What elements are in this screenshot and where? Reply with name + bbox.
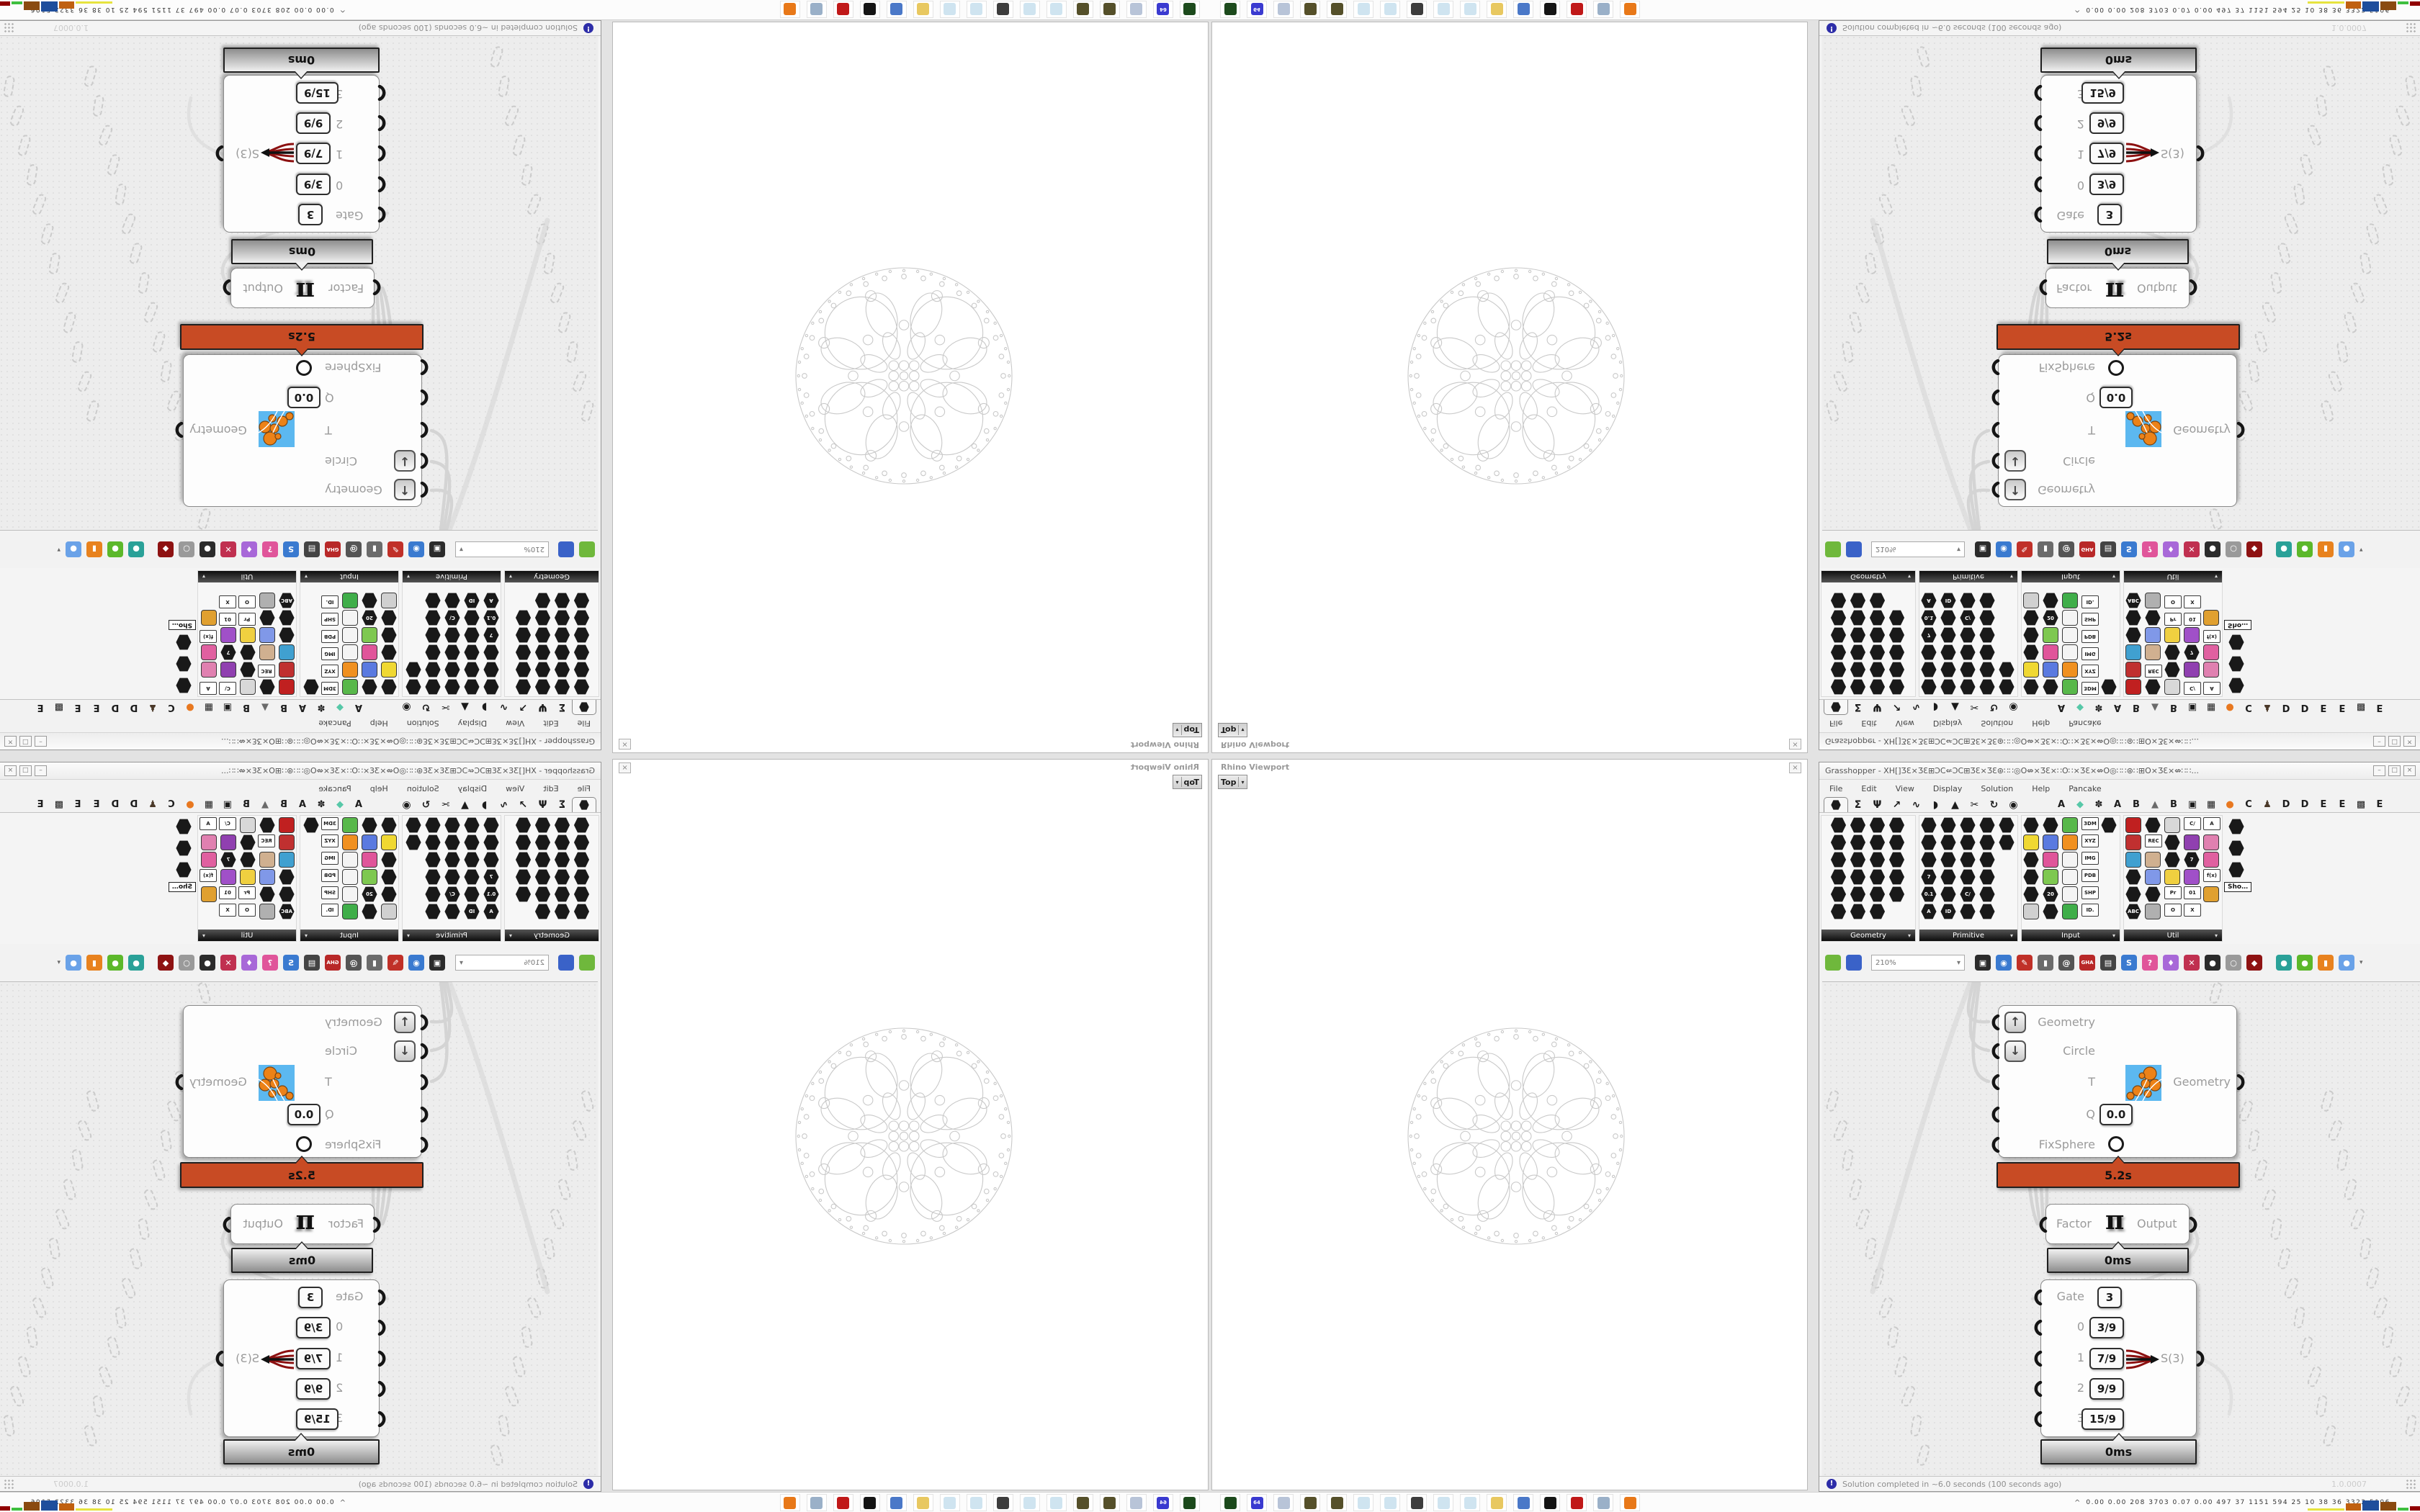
- mystery-box-icon[interactable]: ?: [2142, 955, 2158, 971]
- palette-panel-label[interactable]: Input▾: [300, 571, 398, 582]
- gate-3-value-box[interactable]: 15/9: [2081, 1408, 2124, 1430]
- component-icon[interactable]: 01: [219, 886, 236, 899]
- component-icon[interactable]: [535, 627, 551, 643]
- component-icon[interactable]: [1889, 679, 1905, 695]
- tab-surface[interactable]: ◗: [475, 799, 494, 811]
- component-icon[interactable]: [1979, 869, 1995, 885]
- tray-calculator[interactable]: [807, 1, 827, 18]
- component-icon[interactable]: [574, 817, 590, 833]
- gem-icon[interactable]: ◆: [2246, 541, 2262, 557]
- component-icon[interactable]: [2023, 834, 2039, 850]
- component-icon[interactable]: [483, 817, 499, 833]
- tab-plugin-bird[interactable]: ♟: [2258, 702, 2277, 713]
- capsule-orange-icon[interactable]: ▮: [2318, 955, 2334, 971]
- component-icon[interactable]: [2145, 869, 2161, 885]
- tab-plugin-b1[interactable]: B: [274, 702, 293, 713]
- palette-panel-label[interactable]: Primitive▾: [1919, 930, 2017, 941]
- component-icon[interactable]: [555, 627, 570, 643]
- tab-params[interactable]: [572, 797, 596, 812]
- component-icon[interactable]: [1940, 852, 1956, 868]
- component-icon[interactable]: [2125, 834, 2141, 850]
- component-icon[interactable]: SHP: [2081, 613, 2099, 626]
- component-icon[interactable]: [425, 852, 441, 868]
- tray-notepad-3[interactable]: [967, 1, 987, 18]
- component-icon[interactable]: [362, 834, 377, 850]
- component-icon[interactable]: [516, 662, 532, 678]
- component-icon[interactable]: [279, 627, 295, 643]
- menu-file[interactable]: File: [1829, 719, 1842, 729]
- component-icon[interactable]: [2043, 627, 2058, 643]
- tray-floppy-64[interactable]: 64: [1153, 1494, 1173, 1511]
- component-icon[interactable]: [555, 610, 570, 626]
- tab-plugin-d1[interactable]: D: [2277, 702, 2295, 713]
- tray-badge-red[interactable]: [833, 1, 853, 18]
- rhino-viewport-panel[interactable]: Rhino Viewport × Top ▾: [612, 759, 1209, 1490]
- menu-help[interactable]: Help: [370, 719, 388, 729]
- component-icon[interactable]: [176, 862, 192, 878]
- palette-panel-label[interactable]: Geometry▾: [1821, 571, 1915, 582]
- tab-display[interactable]: ◉: [2004, 799, 2023, 811]
- tab-plugin-e2[interactable]: E: [2333, 799, 2352, 810]
- component-pi[interactable]: Factor π Output: [230, 268, 375, 308]
- component-icon[interactable]: [2043, 817, 2058, 833]
- component-icon[interactable]: [240, 627, 256, 643]
- component-icon[interactable]: ABC: [279, 904, 295, 919]
- component-icon[interactable]: [516, 852, 532, 868]
- component-icon[interactable]: [1850, 834, 1866, 850]
- component-icon[interactable]: [405, 662, 421, 678]
- wire-grip[interactable]: [1989, 450, 2000, 469]
- wire-grip[interactable]: [2236, 419, 2248, 438]
- component-icon[interactable]: [1889, 886, 1905, 902]
- sphere-wire-icon[interactable]: ○: [179, 541, 194, 557]
- sphere-blue-icon[interactable]: ●: [2339, 541, 2354, 557]
- component-icon[interactable]: A: [2203, 682, 2220, 695]
- component-icon[interactable]: [201, 610, 217, 626]
- component-icon[interactable]: [1850, 869, 1866, 885]
- tab-plugin-c[interactable]: C: [2239, 799, 2258, 810]
- component-icon[interactable]: ID: [464, 904, 480, 919]
- component-icon[interactable]: REC: [258, 834, 275, 847]
- wire-grip[interactable]: [172, 1074, 184, 1093]
- component-icon[interactable]: [2043, 869, 2058, 885]
- component-icon[interactable]: [381, 610, 397, 626]
- component-pi[interactable]: Factor π Output: [2045, 1204, 2190, 1244]
- component-icon[interactable]: [1850, 644, 1866, 660]
- tab-transform[interactable]: ↻: [416, 799, 436, 811]
- component-gate[interactable]: Gate 0 1 2 3 3 3/9 7/9 9/9 15/9 S(3): [2040, 75, 2197, 233]
- wire-grip[interactable]: [1989, 356, 2000, 375]
- gh-canvas[interactable]: ↑ ↓ Geometry Circle T Q FixSphere 0.0 Ge…: [1822, 981, 2420, 1477]
- gate-3-value-box[interactable]: 15/9: [296, 82, 339, 104]
- chevron-down-icon[interactable]: ▾: [2359, 546, 2363, 553]
- tab-plugin-grid[interactable]: ▦: [2202, 799, 2220, 810]
- component-icon[interactable]: [342, 593, 358, 608]
- component-icon[interactable]: 01: [219, 613, 236, 626]
- tray-calculator[interactable]: [1593, 1494, 1613, 1511]
- component-icon[interactable]: [464, 627, 480, 643]
- component-icon[interactable]: [1850, 852, 1866, 868]
- zoom-select[interactable]: 210% ▾: [1871, 955, 1965, 971]
- component-icon[interactable]: Pr: [2164, 613, 2182, 626]
- tray-printer[interactable]: [1126, 1, 1147, 18]
- gha-installer-icon[interactable]: GHA: [2079, 955, 2095, 971]
- component-icon[interactable]: 20: [2043, 886, 2058, 902]
- tab-plugin-bird[interactable]: ♟: [143, 702, 162, 713]
- component-icon[interactable]: [1921, 644, 1937, 660]
- component-icon[interactable]: [1889, 662, 1905, 678]
- component-icon[interactable]: [2164, 869, 2180, 885]
- component-icon[interactable]: C/: [219, 817, 236, 830]
- component-icon[interactable]: [1831, 593, 1847, 608]
- component-icon[interactable]: ID.: [321, 595, 339, 608]
- tab-intersect[interactable]: ✂: [1965, 799, 1984, 811]
- tab-mesh[interactable]: ▲: [1945, 799, 1965, 811]
- component-icon[interactable]: [464, 852, 480, 868]
- component-icon[interactable]: [2062, 679, 2078, 695]
- tray-calculator[interactable]: [1593, 1, 1613, 18]
- component-icon[interactable]: [1850, 593, 1866, 608]
- mail-at-icon[interactable]: @: [346, 541, 362, 557]
- tray-sphere-olive-2[interactable]: [1327, 1494, 1347, 1511]
- component-icon[interactable]: [444, 662, 460, 678]
- component-icon[interactable]: [2228, 678, 2244, 693]
- pin-window-icon[interactable]: ▤: [304, 955, 320, 971]
- tray-folder[interactable]: [1487, 1494, 1507, 1511]
- sphere-blue-icon[interactable]: ●: [66, 541, 81, 557]
- component-icon[interactable]: [2164, 852, 2180, 868]
- component-icon[interactable]: 7: [220, 644, 236, 660]
- component-icon[interactable]: [405, 679, 421, 695]
- tray-browser[interactable]: [1620, 1494, 1640, 1511]
- component-icon[interactable]: [2125, 852, 2141, 868]
- tab-surface[interactable]: ◗: [475, 702, 494, 714]
- tray-device-green[interactable]: [1180, 1494, 1200, 1511]
- component-icon[interactable]: [240, 679, 256, 695]
- tab-plugin-b1[interactable]: B: [274, 799, 293, 810]
- component-icon[interactable]: [1979, 852, 1995, 868]
- tray-notepad-4[interactable]: [1460, 1494, 1480, 1511]
- close-icon[interactable]: ×: [619, 739, 631, 750]
- component-icon[interactable]: ID: [1940, 904, 1956, 919]
- balloon-icon[interactable]: ♦: [241, 955, 257, 971]
- preview-eye-icon[interactable]: ◉: [408, 541, 424, 557]
- menu-edit[interactable]: Edit: [543, 719, 558, 729]
- component-icon[interactable]: [425, 610, 441, 626]
- wire-grip[interactable]: [377, 1381, 389, 1400]
- component-icon[interactable]: [1850, 904, 1866, 919]
- component-icon[interactable]: [1921, 834, 1937, 850]
- tab-plugin-d2[interactable]: D: [2295, 799, 2314, 810]
- component-icon[interactable]: [2125, 817, 2141, 833]
- gate-value-box[interactable]: 3: [298, 204, 323, 225]
- tab-transform[interactable]: ↻: [416, 702, 436, 714]
- viewport-tab-top[interactable]: Top ▾: [1218, 775, 1247, 789]
- tray-notepad-1[interactable]: [1047, 1494, 1067, 1511]
- component-icon[interactable]: SHP: [2081, 886, 2099, 899]
- component-icon[interactable]: 01: [2184, 613, 2201, 626]
- component-icon[interactable]: [1831, 610, 1847, 626]
- save-file-icon[interactable]: [558, 955, 574, 971]
- wire-grip[interactable]: [2031, 1351, 2043, 1369]
- component-icon[interactable]: [555, 904, 570, 919]
- tab-plugin-e3[interactable]: E: [31, 702, 50, 713]
- component-icon[interactable]: [2043, 679, 2058, 695]
- component-icon[interactable]: [1960, 834, 1976, 850]
- canvas-extents-icon[interactable]: ▣: [1975, 541, 1991, 557]
- balloon-icon[interactable]: ♦: [2163, 955, 2179, 971]
- wire-grip[interactable]: [172, 419, 184, 438]
- search-s-icon[interactable]: S: [283, 955, 299, 971]
- minimize-button[interactable]: –: [2373, 765, 2385, 776]
- tab-plugin-e1[interactable]: E: [2314, 799, 2333, 810]
- tray-printer[interactable]: [1273, 1494, 1294, 1511]
- tab-plugin-dot[interactable]: ●: [181, 799, 200, 810]
- component-icon[interactable]: [1979, 662, 1995, 678]
- tab-plugin-a2[interactable]: A: [293, 702, 312, 713]
- component-icon[interactable]: A: [1921, 904, 1937, 919]
- component-icon[interactable]: [516, 869, 532, 885]
- maximize-button[interactable]: □: [19, 736, 32, 747]
- component-icon[interactable]: [381, 869, 397, 885]
- wire-grip[interactable]: [420, 356, 431, 375]
- tab-transform[interactable]: ↻: [1984, 799, 2004, 811]
- component-icon[interactable]: [381, 904, 397, 919]
- close-icon[interactable]: ×: [619, 762, 631, 773]
- gate-1-value-box[interactable]: 7/9: [296, 1348, 331, 1369]
- component-icon[interactable]: A: [200, 817, 217, 830]
- component-icon[interactable]: f(x): [200, 630, 217, 643]
- component-icon[interactable]: [2023, 869, 2039, 885]
- component-icon[interactable]: PDB: [2081, 630, 2099, 643]
- component-icon[interactable]: [240, 852, 256, 868]
- fixsphere-toggle[interactable]: [296, 360, 312, 376]
- component-icon[interactable]: [1889, 869, 1905, 885]
- maximize-button[interactable]: □: [19, 765, 32, 776]
- component-icon[interactable]: [535, 904, 551, 919]
- menu-solution[interactable]: Solution: [407, 719, 439, 729]
- gha-installer-icon[interactable]: GHA: [2079, 541, 2095, 557]
- component-icon[interactable]: 0.1: [483, 610, 499, 626]
- tray-folder[interactable]: [913, 1, 933, 18]
- wire-grip[interactable]: [2031, 1381, 2043, 1400]
- component-icon[interactable]: [2203, 644, 2219, 660]
- sphere-dark-icon[interactable]: ●: [2205, 955, 2220, 971]
- component-icon[interactable]: [279, 869, 295, 885]
- component-icon[interactable]: [201, 852, 217, 868]
- component-icon[interactable]: [2228, 840, 2244, 856]
- component-icon[interactable]: 7: [220, 852, 236, 868]
- component-icon[interactable]: [2062, 817, 2078, 833]
- component-icon[interactable]: [444, 869, 460, 885]
- sketch-brush-icon[interactable]: ✎: [2017, 955, 2033, 971]
- minimize-button[interactable]: –: [35, 736, 47, 747]
- component-icon[interactable]: [1870, 644, 1886, 660]
- component-icon[interactable]: [362, 817, 377, 833]
- tab-plugin-c[interactable]: C: [162, 799, 181, 810]
- component-icon[interactable]: [381, 886, 397, 902]
- search-s-icon[interactable]: S: [283, 541, 299, 557]
- component-icon[interactable]: [2145, 886, 2161, 902]
- component-icon[interactable]: [1870, 662, 1886, 678]
- chevron-down-icon[interactable]: ▾: [2359, 959, 2363, 966]
- tab-plugin-e1[interactable]: E: [87, 799, 106, 810]
- component-icon[interactable]: [535, 593, 551, 608]
- component-icon[interactable]: C/: [1960, 886, 1976, 902]
- close-button[interactable]: ×: [4, 765, 17, 776]
- component-icon[interactable]: [1999, 679, 2015, 695]
- component-icon[interactable]: ID.: [2081, 595, 2099, 608]
- gh-canvas[interactable]: ↑ ↓ Geometry Circle T Q FixSphere 0.0 Ge…: [1822, 35, 2420, 531]
- component-icon[interactable]: [464, 869, 480, 885]
- tray-badge-red[interactable]: [1567, 1494, 1587, 1511]
- sphere-blue-icon[interactable]: ●: [66, 955, 81, 971]
- tab-surface[interactable]: ◗: [1926, 702, 1945, 714]
- component-icon[interactable]: A: [200, 682, 217, 695]
- component-icon[interactable]: [574, 610, 590, 626]
- zoom-select[interactable]: 210% ▾: [455, 541, 549, 557]
- component-icon[interactable]: [2164, 644, 2180, 660]
- component-icon[interactable]: [2125, 610, 2141, 626]
- component-icon[interactable]: [535, 662, 551, 678]
- tab-plugin-a2[interactable]: A: [2108, 702, 2127, 713]
- tab-sets[interactable]: Ψ: [533, 702, 552, 714]
- component-icon[interactable]: [1870, 869, 1886, 885]
- tab-plugin-shield[interactable]: ▣: [2183, 799, 2202, 810]
- tab-sets[interactable]: Ψ: [533, 799, 552, 811]
- tab-plugin-grid2[interactable]: ▩: [50, 799, 68, 810]
- tray-monitor[interactable]: [1407, 1, 1427, 18]
- component-icon[interactable]: [2023, 852, 2039, 868]
- component-icon[interactable]: [342, 817, 358, 833]
- component-icon[interactable]: [2023, 644, 2039, 660]
- component-icon[interactable]: X: [219, 595, 236, 608]
- component-icon[interactable]: [444, 627, 460, 643]
- save-file-icon[interactable]: [1846, 541, 1862, 557]
- wire-grip[interactable]: [2189, 1217, 2200, 1236]
- component-icon[interactable]: [342, 644, 358, 660]
- wire-grip[interactable]: [1989, 1014, 2000, 1033]
- expand-chevron-icon[interactable]: ^: [340, 6, 346, 14]
- menu-solution[interactable]: Solution: [1981, 784, 2013, 793]
- component-icon[interactable]: O: [2164, 904, 2182, 917]
- component-icon[interactable]: [279, 852, 295, 868]
- tab-plugin-a2[interactable]: A: [2108, 799, 2127, 810]
- wire-grip[interactable]: [2031, 1411, 2043, 1430]
- component-icon[interactable]: [240, 662, 256, 678]
- gate-1-value-box[interactable]: 7/9: [2089, 1348, 2124, 1369]
- wire-grip[interactable]: [2236, 1074, 2248, 1093]
- wire-grip[interactable]: [377, 143, 389, 161]
- component-icon[interactable]: [555, 852, 570, 868]
- component-icon[interactable]: [279, 817, 295, 833]
- tray-control-panel[interactable]: [1513, 1, 1533, 18]
- component-icon[interactable]: [2023, 679, 2039, 695]
- canvas-extents-icon[interactable]: ▣: [429, 541, 445, 557]
- wire-grip[interactable]: [1989, 1043, 2000, 1062]
- component-icon[interactable]: [425, 679, 441, 695]
- component-icon[interactable]: [1940, 662, 1956, 678]
- tray-device-green[interactable]: [1220, 1, 1240, 18]
- component-icon[interactable]: [2228, 819, 2244, 834]
- component-icon[interactable]: [240, 644, 256, 660]
- component-icon[interactable]: [2145, 627, 2161, 643]
- wire-grip[interactable]: [377, 1290, 389, 1308]
- solid-barrel-icon[interactable]: ▮: [367, 955, 382, 971]
- tab-plugin-e3[interactable]: E: [31, 799, 50, 810]
- component-fixsphere[interactable]: ↑ ↓ Geometry Circle T Q FixSphere 0.0 Ge…: [1998, 354, 2237, 507]
- tab-plugin-b2[interactable]: B: [237, 702, 256, 713]
- gate-2-value-box[interactable]: 9/9: [2089, 112, 2124, 134]
- component-icon[interactable]: [425, 886, 441, 902]
- wire-grip[interactable]: [2036, 276, 2048, 295]
- component-icon[interactable]: [1889, 627, 1905, 643]
- sphere-dark-icon[interactable]: ●: [200, 541, 215, 557]
- component-icon[interactable]: Pr: [2164, 886, 2182, 899]
- tray-floppy-64[interactable]: 64: [1247, 1, 1267, 18]
- open-file-icon[interactable]: [1825, 541, 1841, 557]
- component-icon[interactable]: [2023, 662, 2039, 678]
- component-icon[interactable]: ABC: [2125, 593, 2141, 608]
- wire-grip[interactable]: [420, 1043, 431, 1062]
- component-icon[interactable]: [1870, 679, 1886, 695]
- component-icon[interactable]: C/: [444, 610, 460, 626]
- tray-sphere-olive-2[interactable]: [1073, 1494, 1093, 1511]
- component-icon[interactable]: [1979, 679, 1995, 695]
- wire-grip[interactable]: [372, 1217, 384, 1236]
- solid-barrel-icon[interactable]: ▮: [2038, 955, 2053, 971]
- component-pi[interactable]: Factor π Output: [230, 1204, 375, 1244]
- gate-0-value-box[interactable]: 3/9: [296, 174, 331, 195]
- gem-icon[interactable]: ◆: [158, 955, 174, 971]
- component-icon[interactable]: [444, 834, 460, 850]
- component-icon[interactable]: [1979, 834, 1995, 850]
- pin-window-icon[interactable]: ▤: [2100, 541, 2116, 557]
- tray-sphere-olive-2[interactable]: [1073, 1, 1093, 18]
- component-icon[interactable]: [1850, 886, 1866, 902]
- gem-icon[interactable]: ◆: [2246, 955, 2262, 971]
- tab-plugin-d1[interactable]: D: [2277, 799, 2295, 810]
- component-icon[interactable]: [2203, 886, 2219, 902]
- component-icon[interactable]: [2062, 886, 2078, 902]
- tray-notepad-3[interactable]: [1433, 1, 1453, 18]
- component-icon[interactable]: [516, 886, 532, 902]
- gha-installer-icon[interactable]: GHA: [325, 955, 341, 971]
- component-icon[interactable]: [1831, 679, 1847, 695]
- tab-plugin-e2[interactable]: E: [68, 799, 87, 810]
- component-icon[interactable]: [2062, 904, 2078, 919]
- tab-plugin-bird[interactable]: ♟: [143, 799, 162, 810]
- component-icon[interactable]: [220, 834, 236, 850]
- component-icon[interactable]: [574, 869, 590, 885]
- tray-sphere-olive-1[interactable]: [1300, 1, 1320, 18]
- component-icon[interactable]: [464, 679, 480, 695]
- component-icon[interactable]: [279, 610, 295, 626]
- wire-grip[interactable]: [1989, 1107, 2000, 1125]
- component-icon[interactable]: [342, 679, 358, 695]
- sphere-wire-icon[interactable]: ○: [2226, 541, 2241, 557]
- component-icon[interactable]: PDB: [2081, 869, 2099, 882]
- component-icon[interactable]: [444, 593, 460, 608]
- component-icon[interactable]: [220, 627, 236, 643]
- component-gate[interactable]: Gate 0 1 2 3 3 3/9 7/9 9/9 15/9 S(3): [223, 75, 380, 233]
- resize-grip[interactable]: [4, 1479, 14, 1489]
- component-icon[interactable]: 0.1: [483, 886, 499, 902]
- component-icon[interactable]: [220, 662, 236, 678]
- component-icon[interactable]: [483, 644, 499, 660]
- component-icon[interactable]: [1870, 610, 1886, 626]
- component-icon[interactable]: 0.1: [1921, 610, 1937, 626]
